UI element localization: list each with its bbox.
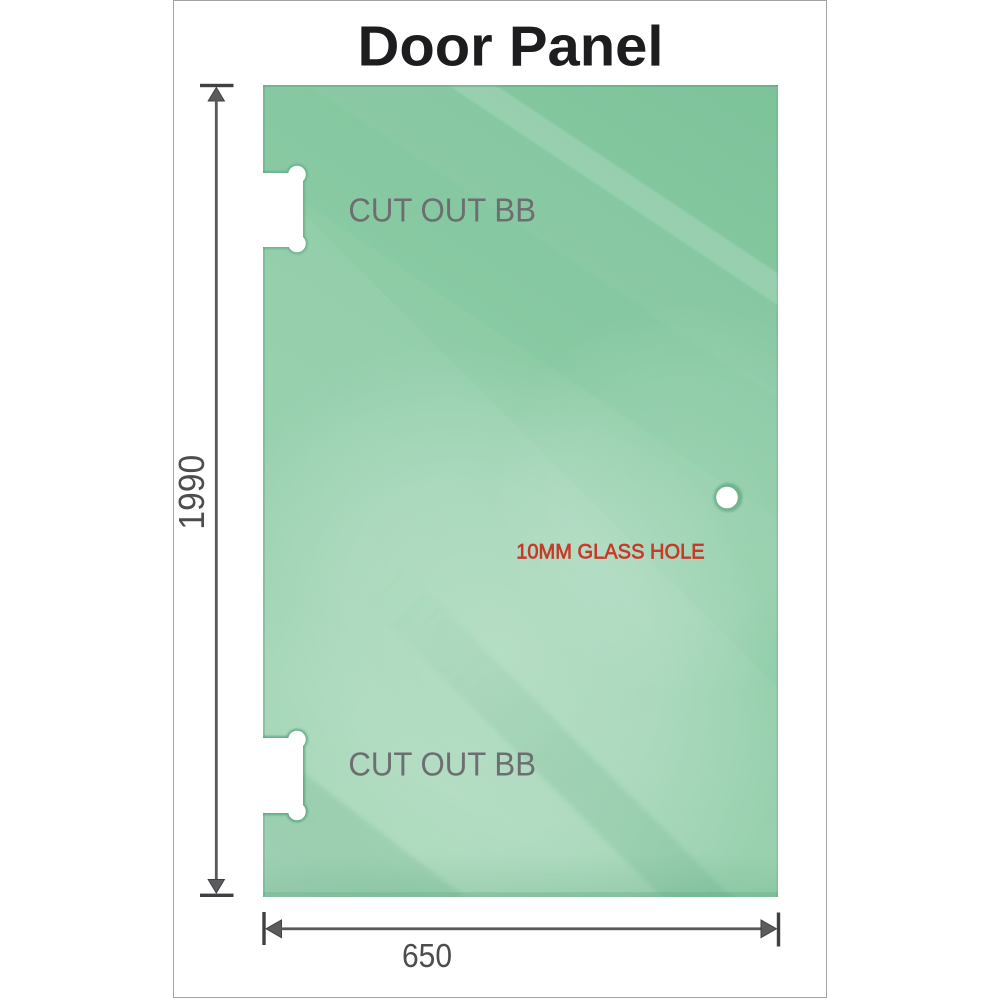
svg-text:CUT OUT BB: CUT OUT BB (348, 747, 536, 784)
svg-text:Door Panel: Door Panel (358, 15, 664, 79)
svg-text:650: 650 (402, 937, 452, 974)
svg-text:CUT OUT BB: CUT OUT BB (348, 193, 536, 230)
svg-text:10MM GLASS HOLE: 10MM GLASS HOLE (516, 540, 705, 563)
svg-text:1990: 1990 (171, 455, 212, 530)
